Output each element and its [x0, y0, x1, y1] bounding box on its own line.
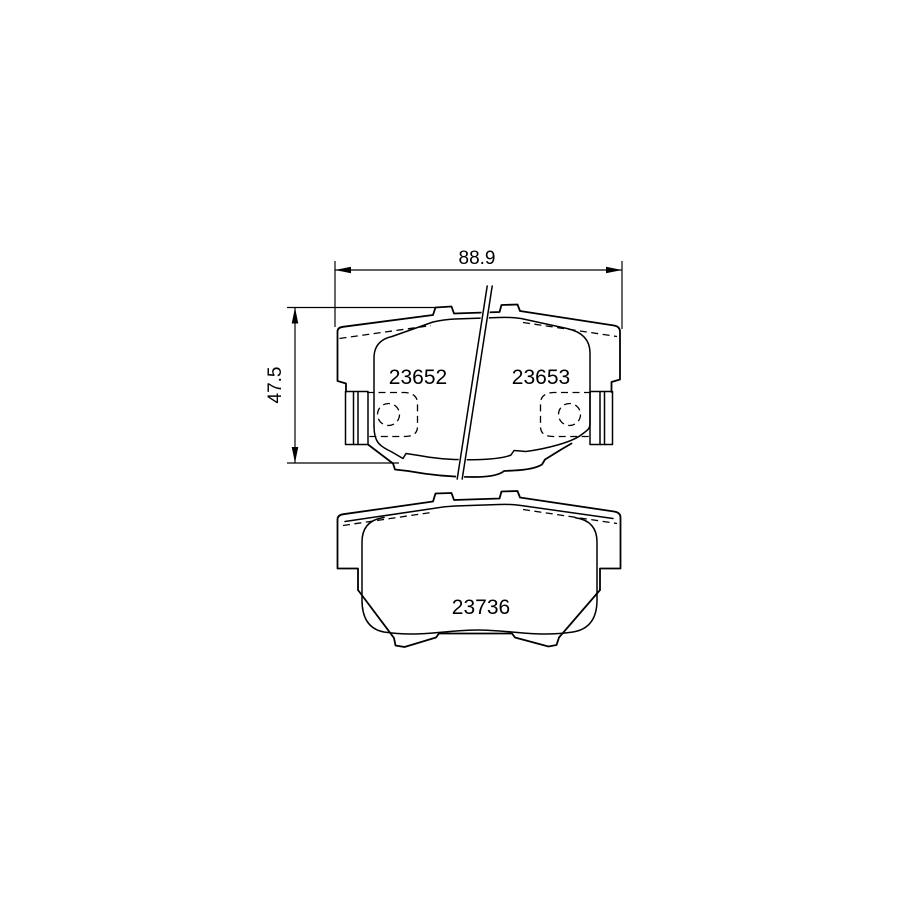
arrowhead-bottom — [292, 447, 299, 463]
hidden-edge-back-left — [343, 513, 431, 526]
right-ear-outline — [541, 393, 592, 437]
break-line-1 — [457, 286, 487, 479]
left-edge-clip — [346, 392, 369, 445]
technical-drawing: 88.9 47.5 — [0, 0, 900, 900]
part-number-front-right: 23653 — [512, 366, 570, 389]
brake-pad-front-view: 23652 23653 — [338, 286, 621, 479]
right-ear-hole — [559, 404, 581, 426]
arrowhead-top — [292, 308, 299, 324]
left-ear-hole — [378, 404, 400, 426]
part-number-back: 23736 — [452, 596, 510, 619]
width-dimension-label: 88.9 — [459, 248, 496, 269]
friction-material-bottom-edge — [374, 424, 590, 460]
right-edge-clip — [590, 392, 613, 445]
drawing-canvas: 88.9 47.5 — [0, 0, 900, 900]
break-gap — [460, 286, 490, 479]
part-number-front-left: 23652 — [389, 366, 447, 389]
backplate-face-top-edge — [345, 504, 613, 521]
arrowhead-right — [606, 267, 622, 274]
dimension-width: 88.9 — [335, 248, 622, 329]
height-dimension-label: 47.5 — [265, 367, 286, 404]
arrowhead-left — [335, 267, 351, 274]
brake-pad-back-view: 23736 — [338, 491, 621, 647]
break-line-2 — [462, 286, 492, 479]
